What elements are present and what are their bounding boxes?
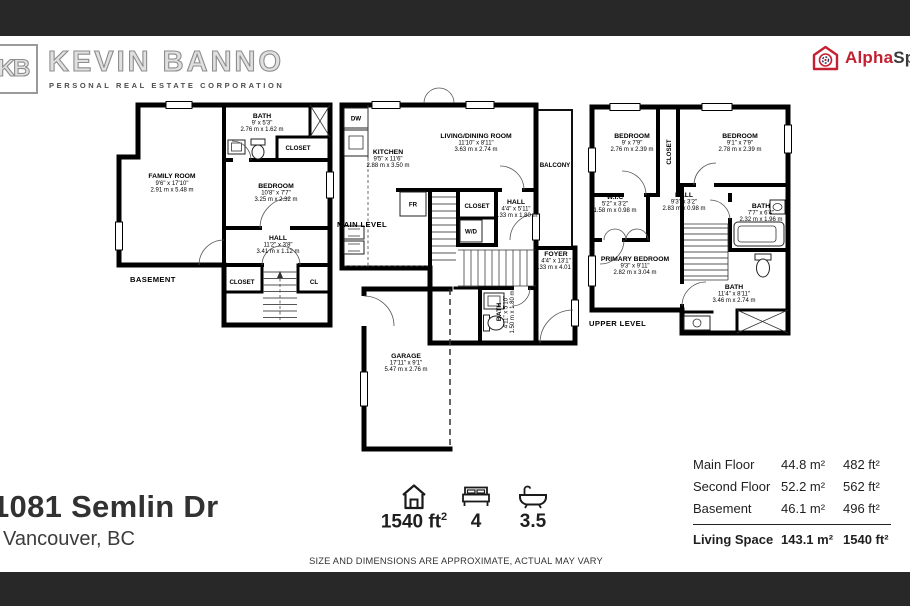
room-label-foyer: FOYER 4'4" x 13'1" 1.33 m x 4.01 m	[534, 251, 577, 271]
table-divider	[693, 524, 891, 525]
svg-text:10'8" x 7'7": 10'8" x 7'7"	[261, 191, 291, 197]
room-label-kitchen: KITCHEN 9'5" x 11'6" 2.88 m x 3.50 m	[366, 149, 409, 169]
main-walls	[342, 88, 579, 343]
svg-text:9' x 7'9": 9' x 7'9"	[622, 141, 643, 147]
svg-text:HALL: HALL	[507, 199, 525, 206]
room-label-upper-closet: CLOSET	[666, 139, 673, 164]
room-label-basement-bath: BATH 9' x 5'3" 2.76 m x 1.62 m	[240, 113, 283, 133]
svg-text:BATH: BATH	[725, 284, 743, 291]
svg-text:11'10" x 8'11": 11'10" x 8'11"	[458, 141, 493, 147]
svg-text:CLOSET: CLOSET	[666, 139, 673, 164]
area-summary-table: Main Floor 44.8 m² 482 ft² Second Floor …	[693, 453, 893, 550]
svg-text:2.91 m x 5.48 m: 2.91 m x 5.48 m	[150, 188, 193, 194]
svg-text:1.33 m x 1.80 m: 1.33 m x 1.80 m	[494, 213, 537, 219]
table-total-row: Living Space 143.1 m² 1540 ft²	[693, 528, 893, 550]
stat-beds-value: 4	[448, 511, 504, 533]
stat-bathrooms: 3.5	[503, 481, 563, 533]
upper-door-arcs	[600, 163, 730, 306]
main-kitchen-fixtures	[344, 105, 482, 266]
svg-text:9'1" x 7'9": 9'1" x 7'9"	[727, 141, 753, 147]
room-label-wd: W/D	[465, 229, 478, 236]
level-label-upper: UPPER LEVEL	[589, 319, 646, 328]
room-label-family-room: FAMILY ROOM 9'6" x 17'10" 2.91 m x 5.48 …	[148, 173, 196, 194]
house-icon	[368, 481, 460, 510]
svg-text:LIVING/DINING ROOM: LIVING/DINING ROOM	[440, 133, 512, 140]
svg-text:7'7" x 6'4": 7'7" x 6'4"	[748, 211, 774, 217]
svg-text:5'2" x 3'2": 5'2" x 3'2"	[602, 202, 628, 208]
room-label-basement-closet-bottom: CLOSET	[229, 279, 254, 286]
svg-text:1.33 m x 4.01 m: 1.33 m x 4.01 m	[534, 265, 577, 271]
svg-text:HALL: HALL	[675, 192, 693, 199]
basement-plan: FAMILY ROOM 9'6" x 17'10" 2.91 m x 5.48 …	[116, 102, 334, 326]
basement-walls	[116, 102, 334, 326]
room-label-basement-hall: HALL 11'2" x 3'8" 3.41 m x 1.12 m	[256, 235, 299, 255]
svg-text:9'3" x 3'2": 9'3" x 3'2"	[671, 200, 697, 206]
bed-icon	[448, 481, 504, 510]
svg-text:3.41 m x 1.12 m: 3.41 m x 1.12 m	[256, 249, 299, 255]
svg-text:BEDROOM: BEDROOM	[258, 183, 294, 190]
svg-text:9'3" x 9'11": 9'3" x 9'11"	[620, 264, 649, 270]
svg-text:9'6" x 17'10": 9'6" x 17'10"	[156, 181, 189, 187]
room-label-upper-hall: HALL 9'3" x 3'2" 2.83 m x 0.98 m	[662, 192, 705, 212]
room-label-upper-bath-bottom: BATH 11'4" x 8'11" 3.46 m x 2.74 m	[712, 284, 755, 304]
svg-text:2.88 m x 3.50 m: 2.88 m x 3.50 m	[366, 163, 409, 169]
level-label-main: MAIN LEVEL	[337, 220, 387, 229]
svg-text:9'5" x 11'6": 9'5" x 11'6"	[373, 157, 402, 163]
svg-text:BATH: BATH	[496, 303, 503, 321]
room-label-basement-bedroom: BEDROOM 10'8" x 7'7" 3.25 m x 2.32 m	[254, 183, 297, 203]
property-address: 1081 Semlin Dr	[0, 489, 218, 525]
disclaimer-text: SIZE AND DIMENSIONS ARE APPROXIMATE, ACT…	[296, 556, 616, 566]
basement-stairs	[263, 271, 297, 320]
svg-text:KITCHEN: KITCHEN	[373, 149, 403, 156]
table-row: Basement 46.1 m² 496 ft²	[693, 497, 893, 519]
room-label-basement-closet-top: CLOSET	[285, 145, 310, 152]
svg-text:4'4" x 5'11": 4'4" x 5'11"	[501, 207, 530, 213]
svg-text:17'11" x 9'1": 17'11" x 9'1"	[390, 361, 422, 367]
room-label-basement-cl: CL	[310, 279, 318, 286]
room-label-bedroom-right: BEDROOM 9'1" x 7'9" 2.78 m x 2.39 m	[718, 133, 761, 153]
room-label-primary-bedroom: PRIMARY BEDROOM 9'3" x 9'11" 2.82 m x 3.…	[601, 256, 670, 276]
svg-text:2.76 m x 2.39 m: 2.76 m x 2.39 m	[610, 147, 653, 153]
svg-text:3.25 m x 2.32 m: 3.25 m x 2.32 m	[254, 197, 297, 203]
room-label-bedroom-left: BEDROOM 9' x 7'9" 2.76 m x 2.39 m	[610, 133, 653, 153]
svg-text:2.78 m x 2.39 m: 2.78 m x 2.39 m	[718, 147, 761, 153]
svg-text:BATH: BATH	[253, 113, 271, 120]
svg-text:3.46 m x 2.74 m: 3.46 m x 2.74 m	[712, 298, 755, 304]
main-level-plan: KITCHEN 9'5" x 11'6" 2.88 m x 3.50 m LIV…	[337, 88, 579, 449]
svg-text:FAMILY ROOM: FAMILY ROOM	[148, 173, 196, 180]
upper-stairs	[684, 224, 728, 280]
svg-text:PRIMARY BEDROOM: PRIMARY BEDROOM	[601, 256, 670, 263]
table-row: Main Floor 44.8 m² 482 ft²	[693, 453, 893, 475]
stat-area-value: 1540 ft2	[368, 511, 460, 533]
svg-text:1.50 m x 1.80 m: 1.50 m x 1.80 m	[510, 290, 516, 333]
bath-icon	[503, 481, 563, 510]
svg-text:2.83 m x 0.98 m: 2.83 m x 0.98 m	[662, 206, 705, 212]
room-label-garage: GARAGE 17'11" x 9'1" 5.47 m x 2.76 m	[384, 353, 427, 373]
level-label-basement: BASEMENT	[130, 275, 176, 284]
svg-text:1.58 m x 0.98 m: 1.58 m x 0.98 m	[593, 208, 636, 214]
svg-text:4'11" x 5'10": 4'11" x 5'10"	[504, 296, 510, 328]
stat-baths-value: 3.5	[503, 511, 563, 533]
room-label-balcony: BALCONY	[540, 162, 571, 169]
svg-text:11'2" x 3'8": 11'2" x 3'8"	[263, 243, 292, 249]
room-label-main-closet: CLOSET	[464, 203, 489, 210]
room-label-fr: FR	[409, 202, 418, 209]
svg-text:W.I.C: W.I.C	[607, 194, 624, 201]
svg-text:HALL: HALL	[269, 235, 287, 242]
table-row: Second Floor 52.2 m² 562 ft²	[693, 475, 893, 497]
svg-text:11'4" x 8'11": 11'4" x 8'11"	[718, 292, 750, 298]
svg-text:2.76 m x 1.62 m: 2.76 m x 1.62 m	[240, 127, 283, 133]
svg-text:BEDROOM: BEDROOM	[614, 133, 650, 140]
stat-bedrooms: 4	[448, 481, 504, 533]
property-city: Vancouver, BC	[3, 528, 135, 551]
svg-text:GARAGE: GARAGE	[391, 353, 421, 360]
room-label-living-dining: LIVING/DINING ROOM 11'10" x 8'11" 3.63 m…	[440, 133, 512, 153]
room-label-main-hall: HALL 4'4" x 5'11" 1.33 m x 1.80 m	[494, 199, 537, 219]
svg-text:2.82 m x 3.04 m: 2.82 m x 3.04 m	[613, 270, 656, 276]
svg-text:BATH: BATH	[752, 203, 770, 210]
upper-level-plan: BEDROOM 9' x 7'9" 2.76 m x 2.39 m CLOSET…	[589, 104, 792, 334]
svg-text:5.47 m x 2.76 m: 5.47 m x 2.76 m	[384, 367, 427, 373]
svg-text:4'4" x 13'1": 4'4" x 13'1"	[541, 259, 571, 265]
svg-text:2.32 m x 1.96 m: 2.32 m x 1.96 m	[739, 217, 782, 223]
svg-text:3.63 m x 2.74 m: 3.63 m x 2.74 m	[454, 147, 497, 153]
svg-text:9' x 5'3": 9' x 5'3"	[252, 121, 273, 127]
stat-floor-area: 1540 ft2	[368, 481, 460, 533]
room-label-dw: DW	[351, 116, 361, 123]
svg-text:BEDROOM: BEDROOM	[722, 133, 758, 140]
svg-text:FOYER: FOYER	[544, 251, 568, 258]
